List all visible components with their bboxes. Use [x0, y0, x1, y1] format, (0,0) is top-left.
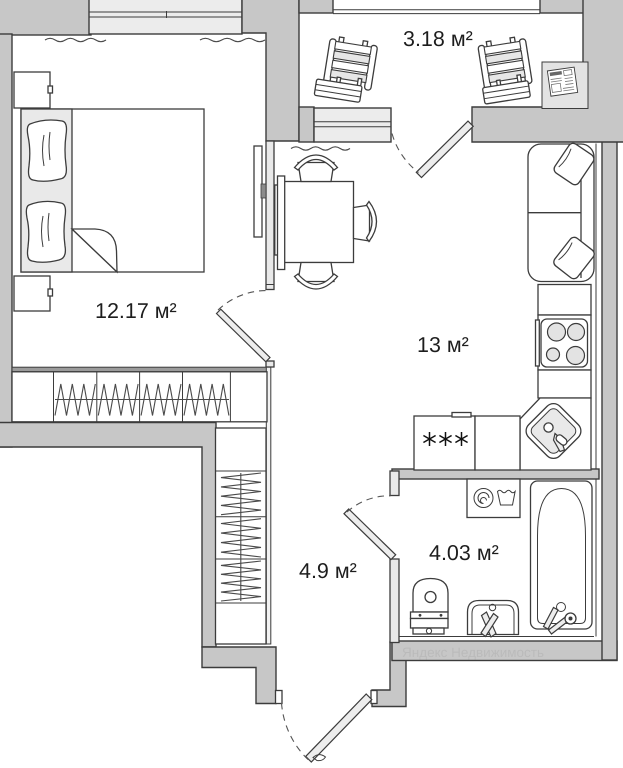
svg-text:3.18 м²: 3.18 м² — [403, 27, 473, 51]
svg-text:4.9 м²: 4.9 м² — [299, 559, 357, 583]
svg-text:4.03 м²: 4.03 м² — [429, 541, 499, 565]
svg-text:Яндекс Недвижимость: Яндекс Недвижимость — [402, 645, 544, 660]
svg-text:13 м²: 13 м² — [417, 333, 469, 357]
svg-text:12.17 м²: 12.17 м² — [95, 299, 177, 323]
